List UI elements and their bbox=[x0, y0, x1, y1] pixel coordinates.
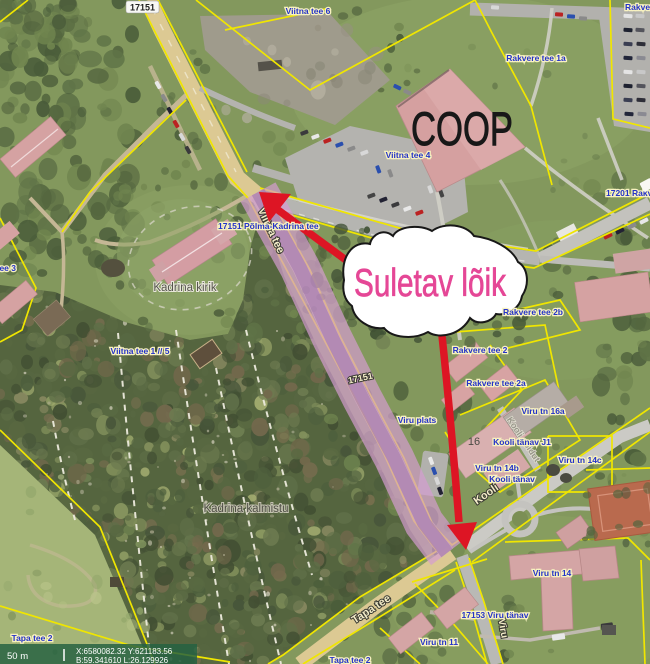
svg-text:Kooli tänav J1: Kooli tänav J1 bbox=[493, 437, 551, 447]
svg-text:Viru plats: Viru plats bbox=[398, 415, 437, 425]
svg-text:B:59.341610 L:26.129926: B:59.341610 L:26.129926 bbox=[76, 656, 169, 664]
svg-text:Viru tn 14: Viru tn 14 bbox=[533, 568, 572, 578]
svg-text:Viru tn 11: Viru tn 11 bbox=[420, 637, 458, 647]
svg-text:Rakvere tee 3: Rakvere tee 3 bbox=[0, 263, 16, 273]
svg-text:Rakvere tee: Rakvere tee bbox=[625, 2, 650, 12]
svg-text:X:6580082.32 Y:621183.56: X:6580082.32 Y:621183.56 bbox=[76, 647, 173, 656]
svg-text:Rakvere tee 2: Rakvere tee 2 bbox=[453, 345, 508, 355]
svg-text:50 m: 50 m bbox=[7, 651, 28, 662]
svg-text:Kadrina kalmistu: Kadrina kalmistu bbox=[203, 503, 288, 515]
svg-text:17153 Viru tänav: 17153 Viru tänav bbox=[462, 610, 529, 620]
svg-text:Viitna tee 6: Viitna tee 6 bbox=[286, 6, 331, 16]
svg-text:Kooli tänav: Kooli tänav bbox=[489, 474, 535, 484]
svg-text:Kadrina kirik: Kadrina kirik bbox=[153, 282, 217, 294]
svg-text:Rakvere tee 1a: Rakvere tee 1a bbox=[506, 53, 566, 63]
svg-text:Tapa tee 2: Tapa tee 2 bbox=[12, 633, 53, 643]
svg-text:Viru tn 14b: Viru tn 14b bbox=[475, 463, 519, 473]
svg-text:Viitna tee 1 // 5: Viitna tee 1 // 5 bbox=[111, 346, 170, 356]
svg-text:Suletav lõik: Suletav lõik bbox=[354, 262, 506, 305]
svg-text:Rakvere tee 2a: Rakvere tee 2a bbox=[466, 378, 526, 388]
svg-text:16: 16 bbox=[468, 436, 480, 448]
svg-text:COOP: COOP bbox=[411, 102, 513, 155]
svg-text:Viru tn 14c: Viru tn 14c bbox=[558, 455, 602, 465]
svg-text:Tapa tee 2: Tapa tee 2 bbox=[330, 655, 371, 664]
svg-text:17151 Põlma-Kadrina tee: 17151 Põlma-Kadrina tee bbox=[218, 221, 319, 231]
svg-text:17151: 17151 bbox=[130, 3, 155, 13]
svg-text:Rakvere tee 2b: Rakvere tee 2b bbox=[503, 307, 563, 317]
svg-text:Viru tn 16a: Viru tn 16a bbox=[521, 406, 565, 416]
